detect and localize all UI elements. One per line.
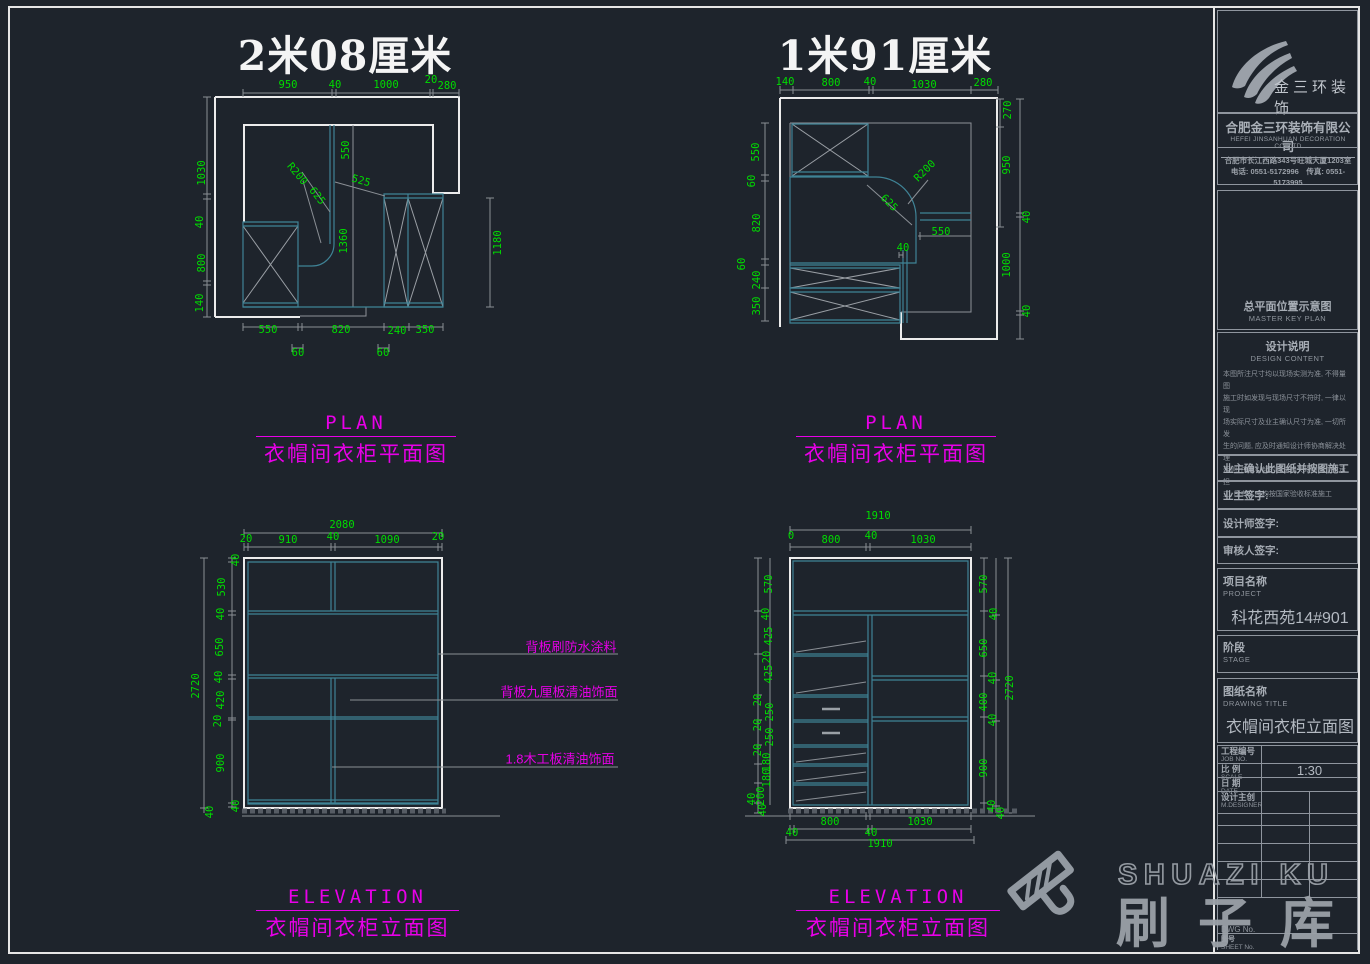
dim-label: 820 — [751, 214, 763, 233]
dim-label: 40 — [760, 608, 772, 621]
dim-label: 650 — [214, 638, 226, 657]
project-value: 科花西苑14#901 — [1223, 604, 1357, 628]
dim-label: 40 — [1021, 305, 1033, 318]
dim-label: 1090 — [374, 534, 399, 546]
dim-label: 20 — [432, 531, 445, 543]
dim-label: 40 — [786, 827, 799, 839]
company-address: 合肥市长江西路343号旺城大厦1203室 电话: 0551-5172996 传真… — [1219, 155, 1357, 188]
design-content-en: DESIGN CONTENT — [1218, 354, 1357, 363]
label-underline — [256, 436, 456, 437]
label-underline — [796, 910, 1000, 911]
project-label-cn: 项目名称 — [1223, 573, 1357, 589]
owner-confirm-row: 业主确认此图纸并按图施工 — [1217, 455, 1358, 481]
dim-label: 550 — [340, 141, 352, 160]
dim-label: 550 — [259, 324, 278, 336]
address-line: 合肥市长江西路343号旺城大厦1203室 — [1219, 155, 1357, 166]
designer-value-2 — [1309, 792, 1357, 813]
dim-label: 40 — [204, 806, 216, 819]
design-note-line: 场实际尺寸及业主确认尺寸为准, 一切所发 — [1223, 417, 1352, 441]
project-label-en: PROJECT — [1223, 589, 1357, 598]
dim-label: 180 — [761, 769, 773, 788]
dim-label: 270 — [1002, 101, 1014, 120]
dim-label: 1910 — [867, 838, 892, 850]
watermark-en: SHUAZI KU — [1118, 859, 1334, 891]
scale-cn: 比 例 — [1221, 765, 1261, 774]
dim-label: 40 — [995, 807, 1007, 820]
dim-label: 350 — [751, 297, 763, 316]
dim-label: 40 — [1021, 211, 1033, 224]
dim-label: 2080 — [329, 519, 354, 531]
scale-value: 1:30 — [1262, 764, 1357, 777]
drawing-geometry — [0, 0, 1213, 964]
dim-label: 900 — [978, 759, 990, 778]
dim-label: 40 — [213, 671, 225, 684]
dim-label: 60 — [292, 347, 305, 359]
job-no-en: JOB NO. — [1221, 756, 1261, 763]
checker-signature-row: 审核人签字: — [1217, 537, 1358, 564]
phone-line: 电话: 0551-5172996 传真: 0551-5173995 — [1219, 166, 1357, 188]
elevation-en: ELEVATION — [256, 886, 459, 908]
dim-label: 40 — [215, 608, 227, 621]
design-note-line: 本图所注尺寸均以现场实测为准, 不得量图 — [1223, 369, 1352, 393]
dim-label: 60 — [377, 347, 390, 359]
dim-label: 250 — [764, 703, 776, 722]
dim-label: 400 — [978, 693, 990, 712]
design-note-line: 施工时如发现与现场尺寸不符时, 一律以现 — [1223, 393, 1352, 417]
dim-label: 1360 — [338, 228, 350, 253]
dim-label: 950 — [1001, 156, 1013, 175]
master-key-en: MASTER KEY PLAN — [1218, 314, 1357, 323]
dim-label: 40 — [987, 672, 999, 685]
dim-label: 425 — [763, 627, 775, 646]
elevation-cn: 衣帽间衣柜立面图 — [796, 912, 1000, 942]
dim-label: 570 — [763, 575, 775, 594]
dim-label: 910 — [279, 534, 298, 546]
owner-signature-row: 业主签字: — [1217, 481, 1358, 509]
dim-label: 20 — [240, 533, 253, 545]
dim-label: 570 — [978, 575, 990, 594]
dim-label: 40 — [757, 804, 769, 817]
plan-right-title: 1米91厘米 — [725, 22, 1045, 82]
job-no-cn: 工程编号 — [1221, 747, 1261, 756]
drawing-title-value: 衣帽间衣柜立面图 — [1223, 713, 1357, 737]
table-row-date: 日 期 DATE — [1218, 778, 1357, 792]
dim-label: 800 — [821, 816, 840, 828]
dim-label: 800 — [196, 254, 208, 273]
dim-label: 20 — [752, 694, 764, 707]
drawing-title-box: 图纸名称 DRAWING TITLE 衣帽间衣柜立面图 — [1217, 678, 1358, 743]
designer-cn: 设计主创 — [1221, 793, 1261, 802]
dim-label: 40 — [194, 216, 206, 229]
dim-label: 40 — [230, 554, 242, 567]
dim-label: 240 — [388, 325, 407, 337]
dim-label: 250 — [764, 728, 776, 747]
dim-label: 1910 — [865, 510, 890, 522]
dim-label: 1180 — [492, 230, 504, 255]
dim-label: 60 — [746, 175, 758, 188]
paintbrush-icon — [1011, 854, 1088, 929]
dim-label: 1030 — [910, 534, 935, 546]
annotation-backboard: 背板九厘板清油饰面 — [500, 682, 617, 701]
dim-label: 900 — [215, 754, 227, 773]
dim-label: 0 — [788, 530, 794, 542]
drawing-title-label-cn: 图纸名称 — [1223, 683, 1357, 699]
master-key-plan-box: 总平面位置示意图 MASTER KEY PLAN — [1217, 190, 1358, 330]
project-box: 项目名称 PROJECT 科花西苑14#901 — [1217, 568, 1358, 631]
dim-label: 1030 — [907, 816, 932, 828]
dim-label: 40 — [988, 608, 1000, 621]
dim-label: 530 — [216, 578, 228, 597]
dim-label: 40 — [987, 714, 999, 727]
designer-value — [1262, 792, 1309, 813]
dim-label: 1030 — [196, 160, 208, 185]
label-underline — [256, 910, 459, 911]
sidebar-divider — [1213, 6, 1215, 954]
dim-label: 650 — [978, 639, 990, 658]
table-row-empty — [1218, 814, 1357, 826]
dim-label: 20 — [752, 719, 764, 732]
dim-label: 140 — [194, 294, 206, 313]
plan-cn: 衣帽间衣柜平面图 — [796, 438, 996, 468]
dim-label: 240 — [751, 271, 763, 290]
design-content-box: 设计说明 DESIGN CONTENT 本图所注尺寸均以现场实测为准, 不得量图… — [1217, 332, 1358, 455]
annotation-plywood: 1.8木工板清油饰面 — [505, 749, 614, 768]
room-inner-lines — [300, 123, 971, 323]
cad-sheet: 95040100020280103040800140550R2006255251… — [0, 0, 1370, 964]
dim-label: 20 — [761, 651, 773, 664]
brand-name: 金三环装饰 — [1274, 76, 1364, 118]
dim-label: 800 — [822, 534, 841, 546]
dim-label: 550 — [750, 143, 762, 162]
dim-label: 40 — [327, 531, 340, 543]
watermark: SHUAZI KU 刷子库 — [1000, 838, 1370, 964]
dim-label: 820 — [332, 324, 351, 336]
master-key-cn: 总平面位置示意图 — [1218, 298, 1357, 314]
stage-label-en: STAGE — [1223, 655, 1357, 664]
elevation-left-label: ELEVATION 衣帽间衣柜立面图 — [256, 886, 459, 942]
dim-label: 60 — [736, 258, 748, 271]
stage-box: 阶段 STAGE — [1217, 635, 1358, 673]
drawer-handles — [822, 709, 840, 733]
elevation-cn: 衣帽间衣柜立面图 — [256, 912, 459, 942]
dim-label: 420 — [215, 691, 227, 710]
table-row-job: 工程编号 JOB NO. — [1218, 746, 1357, 764]
plan-left-label: PLAN 衣帽间衣柜平面图 — [256, 412, 456, 468]
dim-label: 425 — [763, 665, 775, 684]
table-row-designer: 设计主创 M.DESIGNER — [1218, 792, 1357, 814]
dim-label: 2720 — [1004, 675, 1016, 700]
date-cn: 日 期 — [1221, 779, 1261, 788]
table-row-scale: 比 例 SCALE 1:30 — [1218, 764, 1357, 778]
dim-label: 1000 — [1001, 252, 1013, 277]
dim-label: 550 — [932, 226, 951, 238]
plan-right-label: PLAN 衣帽间衣柜平面图 — [796, 412, 996, 468]
designer-en: M.DESIGNER — [1221, 802, 1261, 809]
plan-en: PLAN — [796, 412, 996, 434]
annotation-waterproof: 背板刷防水涂料 — [525, 637, 616, 656]
dim-label: 40 — [230, 800, 242, 813]
stage-label-cn: 阶段 — [1223, 639, 1357, 655]
dim-label: 20 — [212, 715, 224, 728]
drawing-title-label-en: DRAWING TITLE — [1223, 699, 1357, 708]
elevation-en: ELEVATION — [796, 886, 1000, 908]
plan-en: PLAN — [256, 412, 456, 434]
date-value — [1262, 778, 1357, 791]
watermark-cn: 刷子库 — [1116, 894, 1362, 954]
dim-label: 40 — [865, 530, 878, 542]
label-underline — [796, 436, 996, 437]
dim-label: 350 — [416, 324, 435, 336]
elevation-right-label: ELEVATION 衣帽间衣柜立面图 — [796, 886, 1000, 942]
designer-signature-row: 设计师签字: — [1217, 509, 1358, 537]
design-content-cn: 设计说明 — [1218, 338, 1357, 354]
plan-left-title: 2米08厘米 — [185, 22, 505, 82]
plan-cn: 衣帽间衣柜平面图 — [256, 438, 456, 468]
dim-label: 40 — [897, 242, 910, 254]
dim-label: 2720 — [190, 673, 202, 698]
job-no-value — [1262, 746, 1357, 763]
